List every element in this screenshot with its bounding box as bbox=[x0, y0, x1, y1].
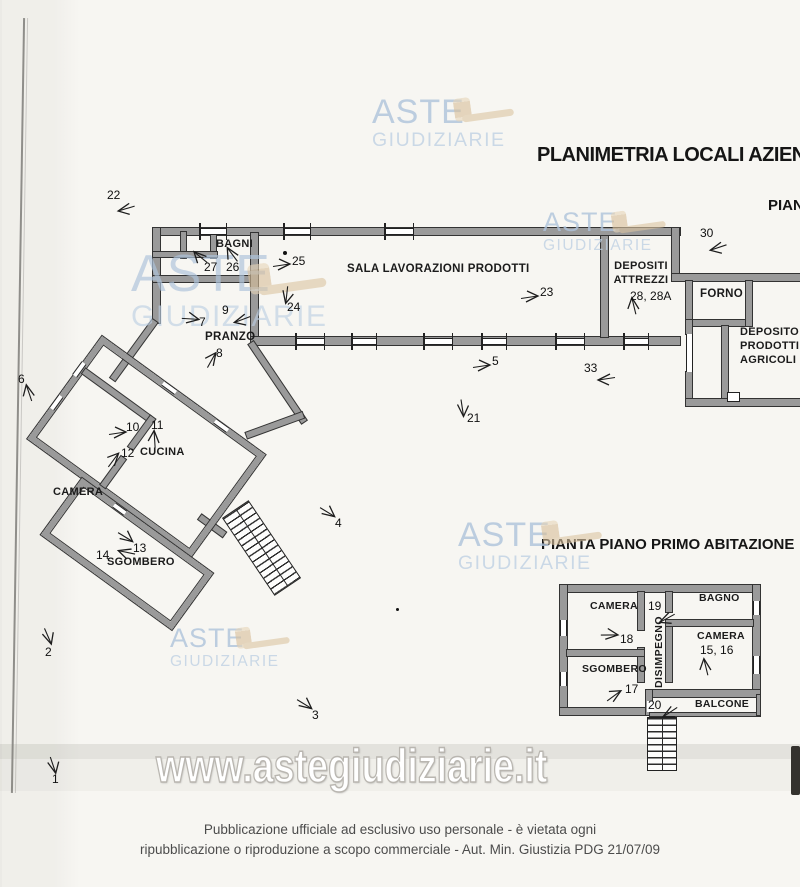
staircase-first-floor bbox=[647, 717, 677, 771]
wall bbox=[686, 399, 800, 406]
marker-number-14: 14 bbox=[96, 548, 109, 562]
marker-number-30: 30 bbox=[700, 226, 713, 240]
wall bbox=[666, 620, 753, 626]
marker-number-23: 23 bbox=[540, 285, 553, 299]
room-label-camera-e: CAMERA bbox=[697, 630, 745, 642]
marker-arrow-23 bbox=[520, 289, 542, 304]
wall bbox=[82, 369, 150, 421]
marker-number-1: 1 bbox=[52, 772, 59, 786]
marker-number-24: 24 bbox=[287, 300, 300, 314]
marker-arrow-5 bbox=[472, 358, 494, 373]
marker-number-21: 21 bbox=[467, 411, 480, 425]
wall bbox=[638, 592, 644, 630]
room-label-balcone: BALCONE bbox=[695, 698, 749, 710]
room-label-deposito-2: PRODOTTI bbox=[740, 340, 799, 352]
window bbox=[753, 656, 760, 674]
marker-number-5: 5 bbox=[492, 354, 499, 368]
door-mark bbox=[727, 392, 740, 402]
gavel-icon bbox=[234, 622, 292, 660]
marker-number-7: 7 bbox=[199, 315, 206, 329]
room-label-camera-gf: CAMERA bbox=[53, 486, 103, 498]
scanned-floorplan-page: PLANIMETRIA LOCALI AZIEN PIAN PIANTA PIA… bbox=[0, 0, 800, 887]
scan-left-edge-line bbox=[11, 18, 25, 793]
marker-number-12: 12 bbox=[121, 446, 134, 460]
marker-number-19: 19 bbox=[648, 599, 661, 613]
room-label-deposito-3: AGRICOLI bbox=[740, 354, 796, 366]
wall bbox=[722, 326, 728, 402]
room-label-deposito-1: DEPOSITO bbox=[740, 326, 799, 338]
marker-number-17: 17 bbox=[625, 682, 638, 696]
wall bbox=[666, 626, 672, 682]
wall bbox=[672, 274, 800, 281]
marker-number-33: 33 bbox=[584, 361, 597, 375]
marker-arrow-25 bbox=[272, 257, 294, 272]
marker-number-9: 9 bbox=[222, 303, 229, 317]
plan-dot bbox=[396, 608, 399, 611]
window bbox=[624, 338, 648, 345]
footer-line-1: Pubblicazione ufficiale ad esclusivo uso… bbox=[0, 822, 800, 837]
wall bbox=[757, 695, 760, 715]
gavel-icon bbox=[540, 515, 604, 557]
gavel-icon bbox=[610, 206, 668, 244]
room-label-camera-nw: CAMERA bbox=[590, 600, 638, 612]
page-title: PLANIMETRIA LOCALI AZIEN bbox=[537, 144, 800, 167]
wall bbox=[560, 585, 567, 715]
room-label-forno: FORNO bbox=[700, 288, 743, 300]
marker-number-6: 6 bbox=[18, 372, 25, 386]
watermark-url: www.astegiudiziarie.it bbox=[156, 738, 547, 793]
room-label-depositi-2: ATTREZZI bbox=[604, 274, 678, 286]
window bbox=[424, 338, 452, 345]
wall bbox=[686, 320, 692, 334]
marker-number-2: 2 bbox=[45, 645, 52, 659]
marker-number-11: 11 bbox=[151, 418, 163, 432]
room-label-sala: SALA LAVORAZIONI PRODOTTI bbox=[347, 263, 530, 275]
footer-line-2: ripubblicazione o riproduzione a scopo c… bbox=[0, 842, 800, 857]
window bbox=[686, 334, 693, 372]
marker-arrow-22 bbox=[113, 201, 137, 219]
gavel-icon bbox=[452, 92, 516, 134]
wall bbox=[560, 708, 652, 715]
room-label-depositi-1: DEPOSITI bbox=[604, 260, 678, 272]
window bbox=[560, 672, 567, 686]
marker-number-3: 3 bbox=[312, 708, 319, 722]
marker-number-4: 4 bbox=[335, 516, 342, 530]
marker-arrow-15, 16 bbox=[697, 654, 714, 677]
wall bbox=[249, 341, 307, 423]
marker-number-18: 18 bbox=[620, 632, 633, 646]
window bbox=[385, 228, 413, 235]
marker-number-15, 16: 15, 16 bbox=[700, 643, 733, 657]
window bbox=[556, 338, 584, 345]
window bbox=[560, 620, 567, 636]
staircase-ground-floor bbox=[222, 500, 301, 596]
marker-number-20: 20 bbox=[648, 698, 661, 712]
window bbox=[200, 228, 226, 235]
window bbox=[352, 338, 376, 345]
room-label-sgombero-ff: SGOMBERO bbox=[582, 663, 647, 675]
wall bbox=[246, 412, 304, 438]
wall bbox=[746, 281, 752, 326]
marker-arrow-30 bbox=[705, 239, 729, 258]
marker-number-26: 26 bbox=[226, 260, 239, 274]
window bbox=[753, 601, 760, 615]
marker-number-28, 28A: 28, 28A bbox=[630, 289, 671, 303]
marker-number-8: 8 bbox=[216, 346, 223, 360]
window bbox=[482, 338, 506, 345]
wall bbox=[567, 650, 644, 656]
window bbox=[296, 338, 324, 345]
marker-number-27: 27 bbox=[204, 260, 217, 274]
scan-right-edge-mark bbox=[791, 746, 800, 795]
room-label-bagno: BAGNO bbox=[699, 592, 740, 604]
wall bbox=[560, 585, 760, 592]
marker-number-25: 25 bbox=[292, 254, 305, 268]
marker-number-22: 22 bbox=[107, 188, 120, 202]
wall bbox=[650, 690, 760, 697]
window bbox=[284, 228, 310, 235]
title-top-right-partial: PIAN bbox=[768, 197, 800, 214]
marker-number-10: 10 bbox=[126, 420, 139, 434]
